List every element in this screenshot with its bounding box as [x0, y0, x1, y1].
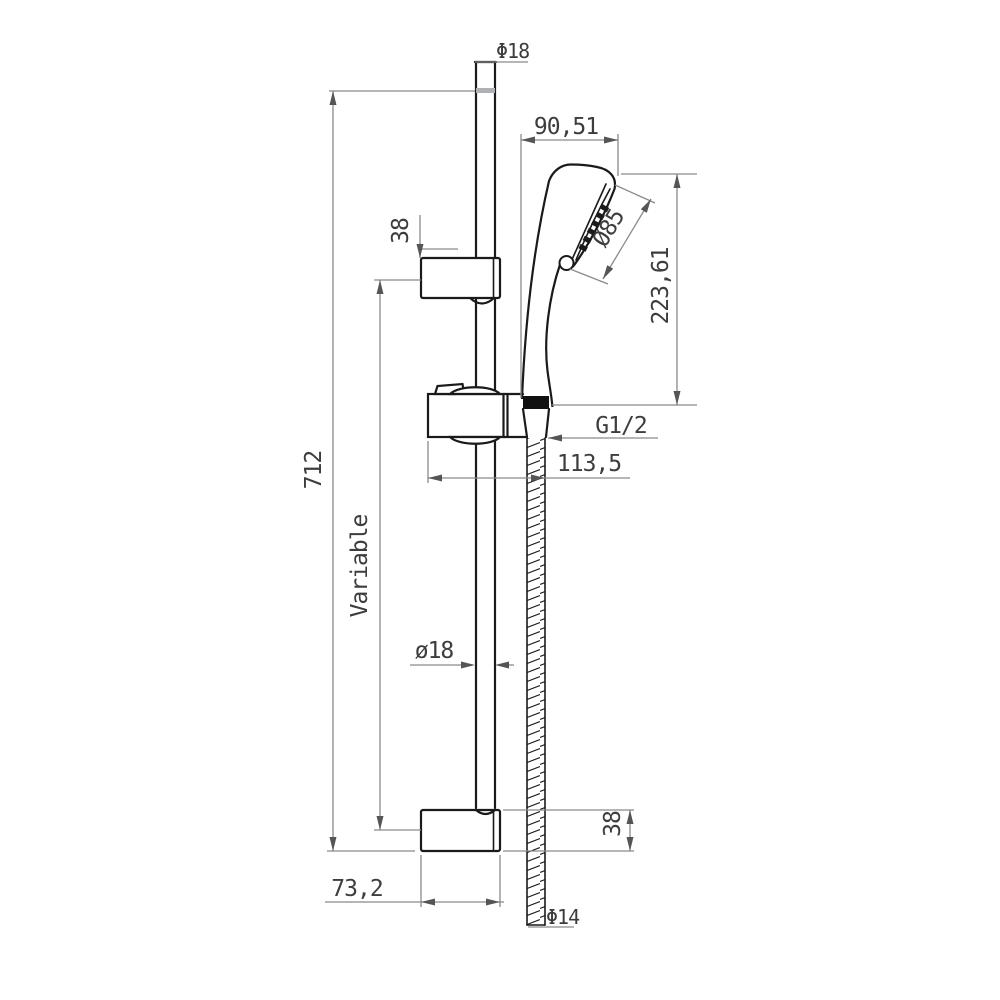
dim-variable-span: Variable — [347, 280, 421, 830]
thread-size-label: G1/2 — [595, 413, 646, 439]
shower-hose — [527, 438, 545, 925]
dim-bar-diameter: ø18 — [410, 638, 514, 669]
shower-rail-technical-drawing: Φ18 712 Variable 38 — [0, 0, 1000, 1000]
holder-bottom-clamp — [450, 437, 500, 444]
head-height-label: 223,61 — [648, 247, 674, 324]
variable-span-label: Variable — [347, 514, 373, 617]
hose-nut — [523, 396, 549, 409]
top-wall-bracket — [421, 258, 500, 304]
bottom-wall-bracket — [421, 810, 500, 851]
drawing-sheet: Φ18 712 Variable 38 — [0, 0, 1000, 1000]
hose-diameter-label: Φ14 — [546, 905, 580, 929]
bar-diameter-label: ø18 — [415, 638, 454, 664]
dim-total-length: 712 — [301, 91, 475, 851]
face-pivot-dot — [560, 256, 574, 270]
dim-thread-size: G1/2 — [548, 413, 658, 442]
head-reach-label: 90,51 — [534, 114, 598, 140]
bracket-width-label: 73,2 — [331, 876, 382, 902]
dim-bracket-width: 73,2 — [325, 855, 504, 907]
total-length-label: 712 — [301, 451, 327, 490]
holder-reach-label: 113,5 — [557, 451, 621, 477]
dim-bottom-bracket-depth: 38 — [503, 810, 634, 851]
top-bracket-depth-label: 38 — [388, 218, 414, 244]
dim-top-bracket-depth: 38 — [388, 215, 458, 258]
dim-top-bar-diameter: Φ18 — [475, 39, 529, 63]
top-bar-diameter-label: Φ18 — [496, 39, 529, 63]
hand-shower-outline — [522, 165, 615, 408]
bottom-bracket-depth-label: 38 — [600, 811, 626, 837]
hand-shower — [522, 165, 615, 408]
bar-cap-band — [476, 88, 495, 93]
dimensions: Φ18 712 Variable 38 — [301, 39, 697, 929]
